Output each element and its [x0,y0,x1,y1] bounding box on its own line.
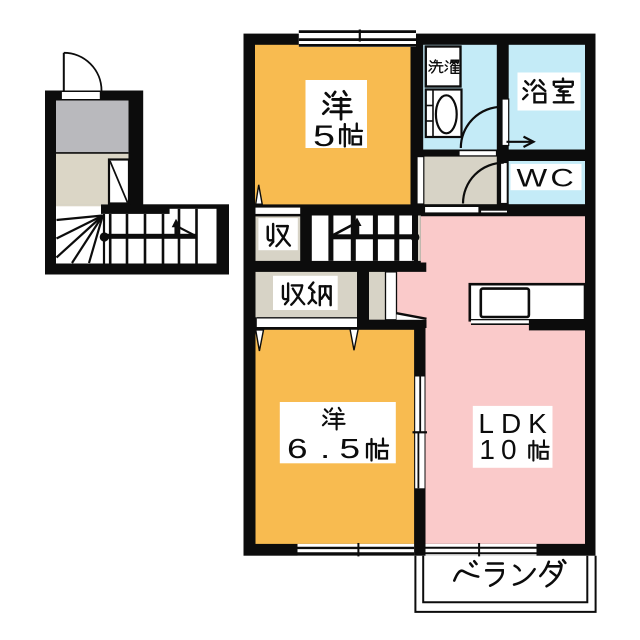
svg-text:.: . [320,432,330,464]
svg-text:6: 6 [287,432,308,464]
svg-text:5: 5 [313,120,335,153]
svg-text:10: 10 [479,434,522,465]
svg-text:5: 5 [340,432,361,464]
svg-text:WC: WC [517,165,578,193]
